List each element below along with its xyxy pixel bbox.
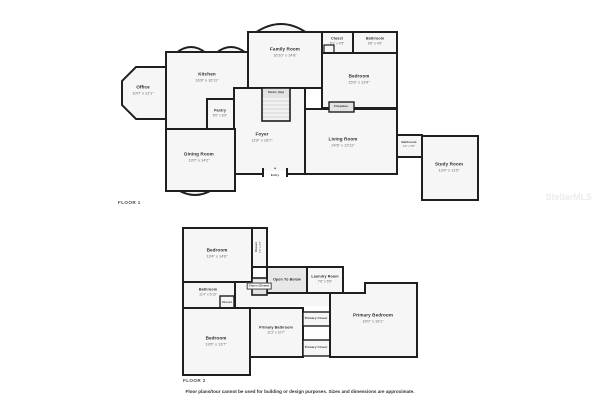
room-family-shape bbox=[248, 32, 322, 88]
stellar-mls-watermark: StellarMLS bbox=[545, 192, 592, 202]
label-closet-top: Closet6'1" x 4'5" bbox=[330, 36, 344, 45]
label-primary-closet-bottom: Primary Closet bbox=[305, 346, 328, 350]
label-living-room: Living Room24'6" x 13'11" bbox=[329, 136, 358, 147]
label-bedroom-f1: Bedroom15'3" x 13'4" bbox=[348, 73, 369, 84]
label-fireplace: Fireplace bbox=[334, 105, 348, 109]
label-family-room: Family Room16'10" x 14'8" bbox=[270, 46, 300, 57]
floorplan-image: Office10'0" x 12'1" Kitchen16'8" x 16'11… bbox=[0, 0, 600, 400]
label-pantry: Pantry5'0" x 6'0" bbox=[213, 108, 227, 117]
label-bedroom2-bottom: Bedroom13'6" x 13'7" bbox=[205, 335, 226, 346]
label-stairs-up: Stairs (Up) bbox=[268, 91, 284, 95]
floorplan-drawing bbox=[0, 0, 600, 400]
label-kitchen: Kitchen16'8" x 16'11" bbox=[195, 71, 218, 82]
label-primary-bathroom: Primary Bathroom11'3" x 10'7" bbox=[259, 325, 293, 334]
label-laundry-room: Laundry Room7'6" x 5'9" bbox=[311, 274, 338, 283]
label-bathroom-f2: Bathroom11'4" x 5'10" bbox=[199, 287, 217, 296]
label-closet-tall: Closet2'5" x 8'6" bbox=[255, 241, 263, 253]
label-bathroom-top: Bathroom9'6" x 4'9" bbox=[366, 36, 384, 45]
floor1-label: FLOOR 1 bbox=[118, 200, 141, 205]
label-bedroom2-top: Bedroom13'4" x 14'6" bbox=[206, 247, 227, 258]
label-entry: Entry bbox=[271, 174, 279, 178]
label-study-room: Study Room13'4" x 11'5" bbox=[435, 161, 463, 172]
label-primary-bedroom: Primary Bedroom16'0" x 16'1" bbox=[353, 312, 393, 323]
floor2-label: FLOOR 2 bbox=[183, 378, 206, 383]
label-stairs-down: Stairs (Down) bbox=[247, 283, 272, 290]
entry-arrow-icon: ▲ bbox=[273, 166, 276, 170]
label-primary-closet-top: Primary Closet bbox=[305, 317, 328, 321]
label-foyer: Foyer11'8" x 16'7" bbox=[251, 131, 272, 142]
label-closet-small: Closet bbox=[222, 301, 232, 305]
label-bathroom-small: Bathroom4'6" x 5'8" bbox=[402, 141, 417, 149]
disclaimer-text: Floor plans/tour cannot be used for buil… bbox=[0, 389, 600, 394]
label-office: Office10'0" x 12'1" bbox=[132, 84, 153, 95]
label-dining-room: Dining Room13'0" x 14'2" bbox=[184, 151, 214, 162]
label-open-to-below: Open To Below bbox=[273, 278, 301, 283]
